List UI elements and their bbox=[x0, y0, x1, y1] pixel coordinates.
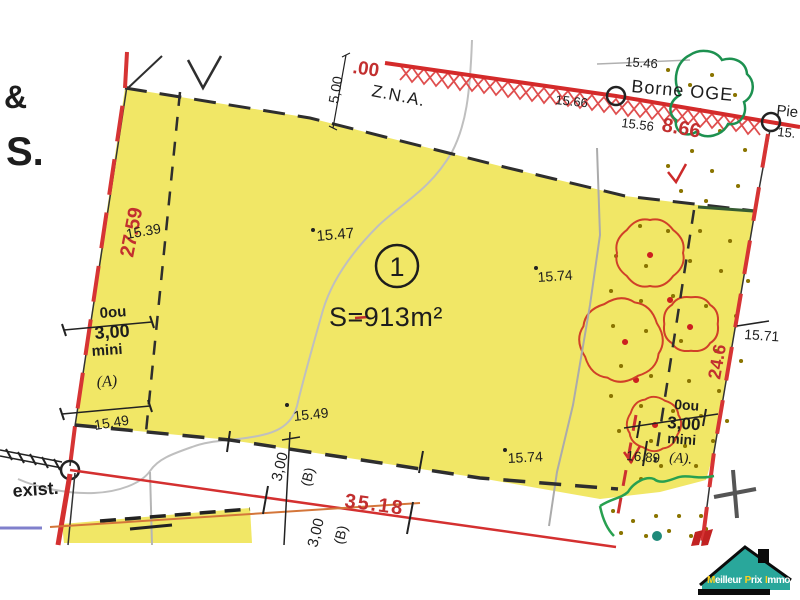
corner-line bbox=[128, 56, 162, 88]
setback-right-0ou: 0ou bbox=[674, 396, 700, 414]
exist-label: exist. bbox=[12, 478, 59, 501]
realtor-logo: MeilleurPrixImmo bbox=[691, 529, 791, 595]
dim-8-66: 8.66 bbox=[660, 114, 702, 142]
dim-35-18: 35.18 bbox=[343, 490, 405, 520]
logo-text: MeilleurPrixImmo bbox=[707, 575, 790, 586]
setback-right-a: (A). bbox=[669, 450, 693, 468]
setback-left-0ou: 0ou bbox=[99, 303, 127, 322]
dim-15-71: 15.71 bbox=[744, 326, 780, 344]
dim-3-00-upper: 3,00 bbox=[268, 451, 292, 483]
parcel-number: 1 bbox=[389, 252, 404, 282]
logo-word-mmo: mmo bbox=[767, 575, 790, 586]
logo-letter-m: M bbox=[707, 575, 715, 586]
setback-left-a: (A) bbox=[96, 373, 118, 391]
dim-16-89: 16.89 bbox=[626, 448, 661, 466]
parcel-area: S=913m² bbox=[329, 302, 443, 332]
dim-3-00-lower: 3,00 bbox=[304, 517, 328, 549]
logo-word-rix: rix bbox=[751, 575, 763, 586]
plan-drawing: & S. 27.59 15.39 .00 5,00 Z.N.A. 15.46 B… bbox=[0, 0, 800, 600]
fence-hatched-line bbox=[0, 450, 62, 468]
dim-15-56: 15.56 bbox=[621, 115, 655, 134]
logo-base-bar bbox=[698, 589, 770, 595]
dim-15-47: 15.47 bbox=[316, 225, 355, 245]
margin-s: S. bbox=[6, 130, 44, 174]
pie-label: Pie bbox=[776, 102, 799, 121]
zone-zna-label: Z.N.A. bbox=[370, 81, 427, 110]
dim-15-74-bottom: 15.74 bbox=[507, 448, 543, 466]
green-blob-small bbox=[652, 531, 662, 541]
logo-word-eilleur: eilleur bbox=[715, 575, 742, 586]
setback-right-mini: mini bbox=[667, 430, 697, 448]
dim-5-00: 5,00 bbox=[325, 75, 346, 105]
cadastral-plan-scan: & S. 27.59 15.39 .00 5,00 Z.N.A. 15.46 B… bbox=[0, 0, 800, 600]
slope-v-mark bbox=[188, 56, 221, 88]
pie-number: 15. bbox=[777, 124, 797, 141]
dim-15-66: 15.66 bbox=[555, 92, 589, 110]
setback-left-mini: mini bbox=[91, 341, 123, 360]
dim-15-74-top: 15.74 bbox=[537, 267, 573, 285]
setback-left-3-00: 3,00 bbox=[94, 321, 130, 343]
dim-b-upper: (B) bbox=[297, 466, 317, 488]
survey-cross bbox=[714, 470, 756, 518]
dim-b-lower: (B) bbox=[330, 524, 350, 546]
dim-15-46: 15.46 bbox=[625, 54, 659, 71]
road-band bbox=[385, 63, 800, 135]
margin-ampersand: & bbox=[4, 79, 27, 115]
dim-dot-00: .00 bbox=[351, 57, 380, 81]
